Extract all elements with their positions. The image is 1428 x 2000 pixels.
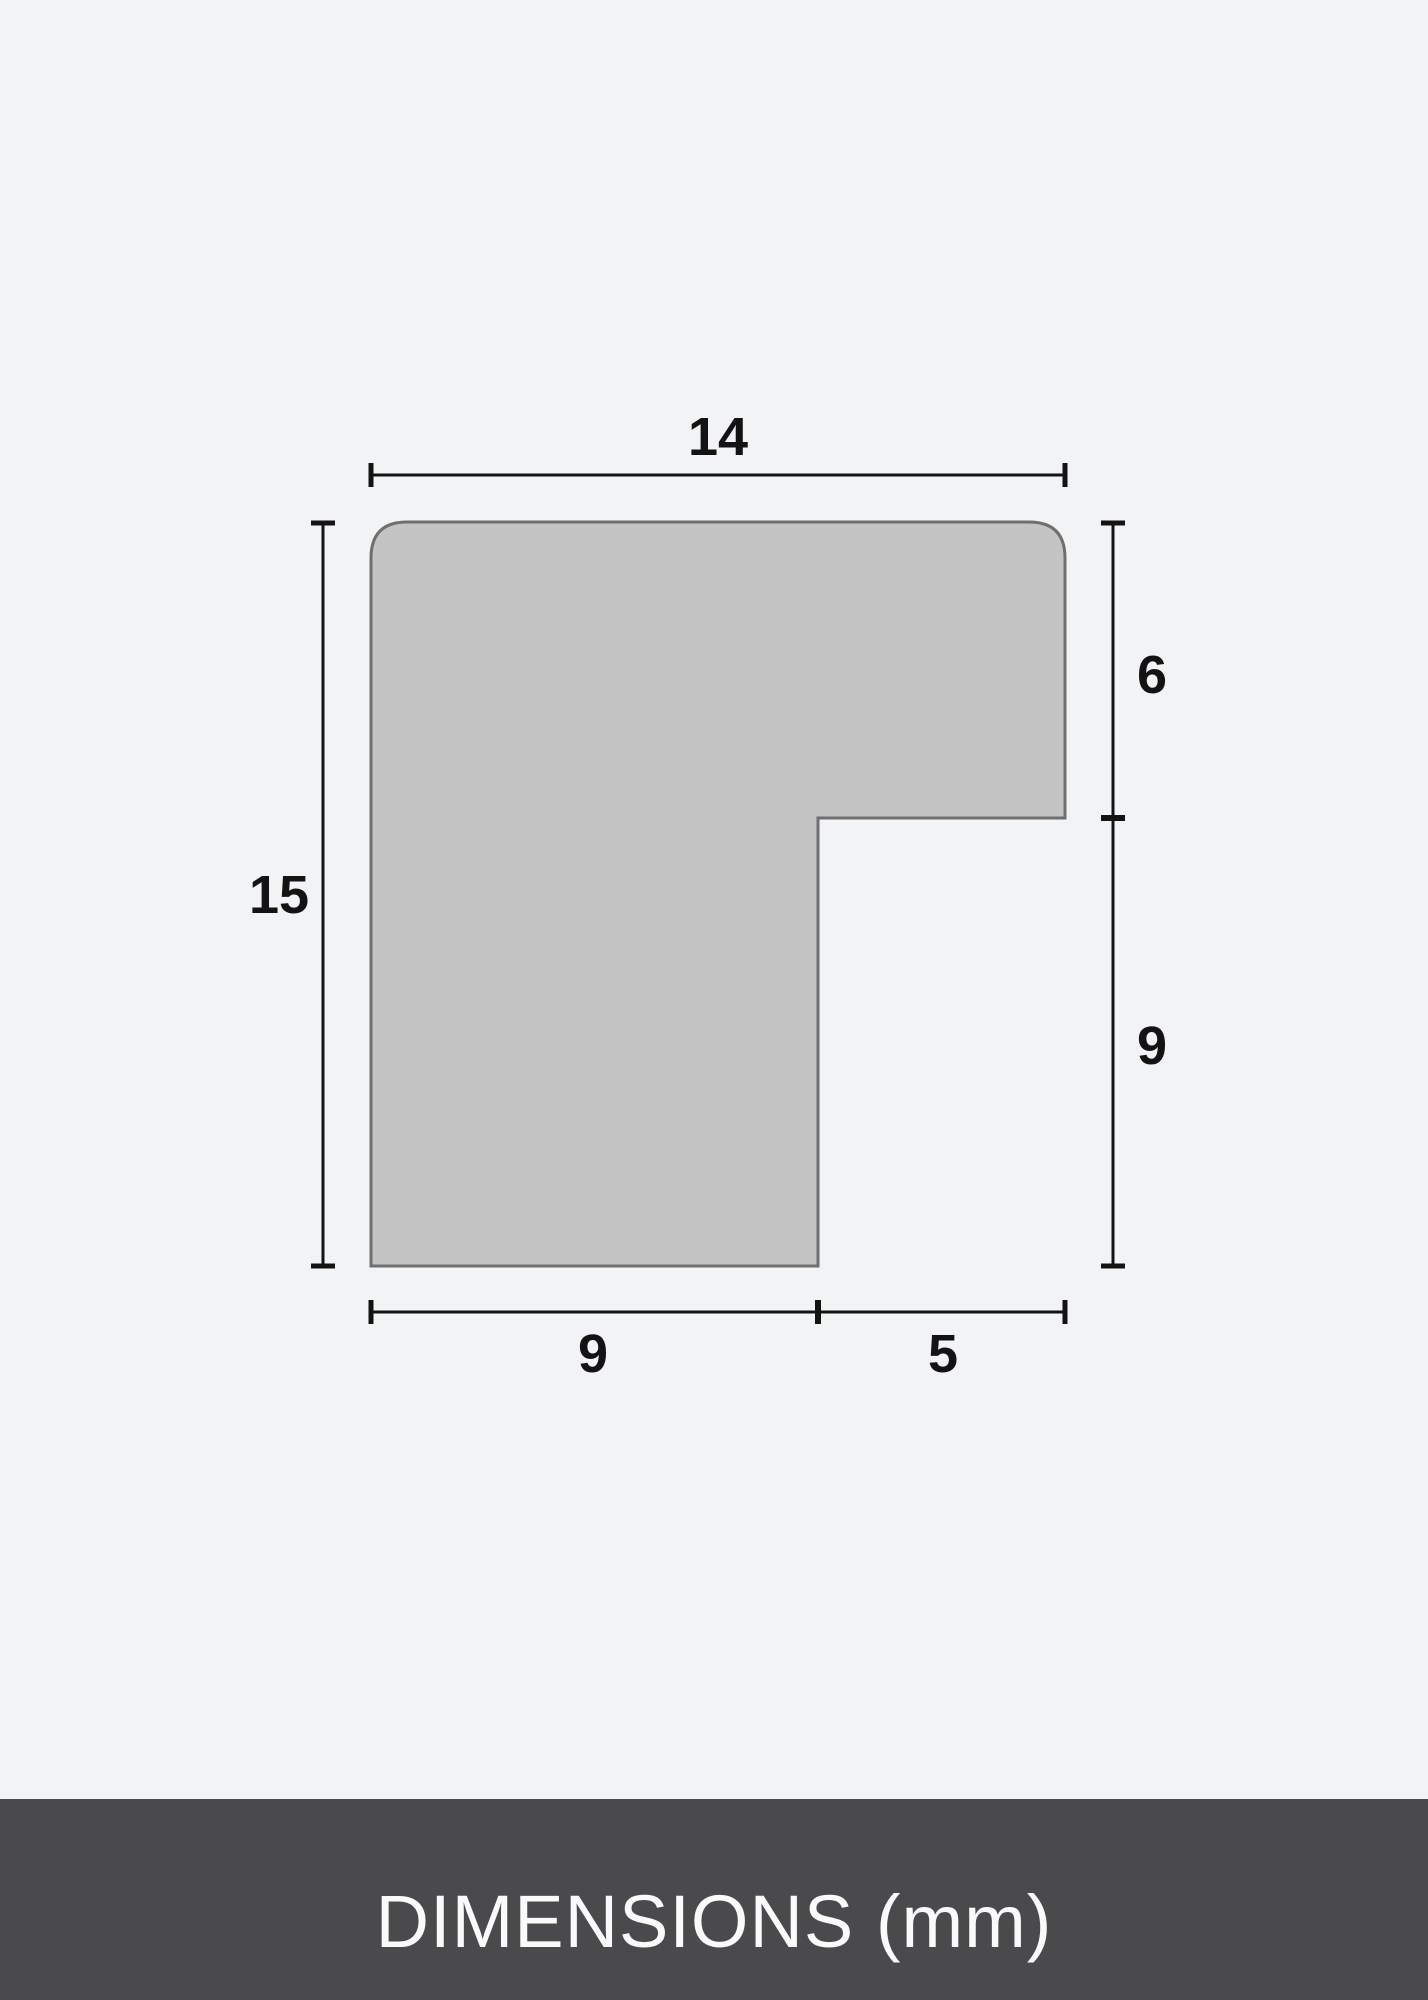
dimension-label-top-width: 14 — [688, 407, 748, 467]
dimension-label-right-lower: 9 — [1137, 1016, 1167, 1076]
frame-profile-shape — [371, 522, 1065, 1266]
dimension-label-left-height: 15 — [249, 865, 309, 925]
profile-dimension-diagram: 14 15 6 9 9 5 — [0, 0, 1428, 1799]
footer-bar: DIMENSIONS (mm) — [0, 1799, 1428, 2000]
dimension-label-bottom-right: 5 — [928, 1324, 958, 1384]
page: 14 15 6 9 9 5 DIMENSIONS (mm) — [0, 0, 1428, 2000]
dimension-label-bottom-left: 9 — [578, 1324, 608, 1384]
footer-title: DIMENSIONS (mm) — [376, 1885, 1053, 1959]
dimension-line-bottom — [371, 1300, 1065, 1324]
dimension-line-left-height — [311, 523, 335, 1266]
dimension-label-right-upper: 6 — [1137, 645, 1167, 705]
dimension-line-right-side — [1101, 523, 1125, 1266]
